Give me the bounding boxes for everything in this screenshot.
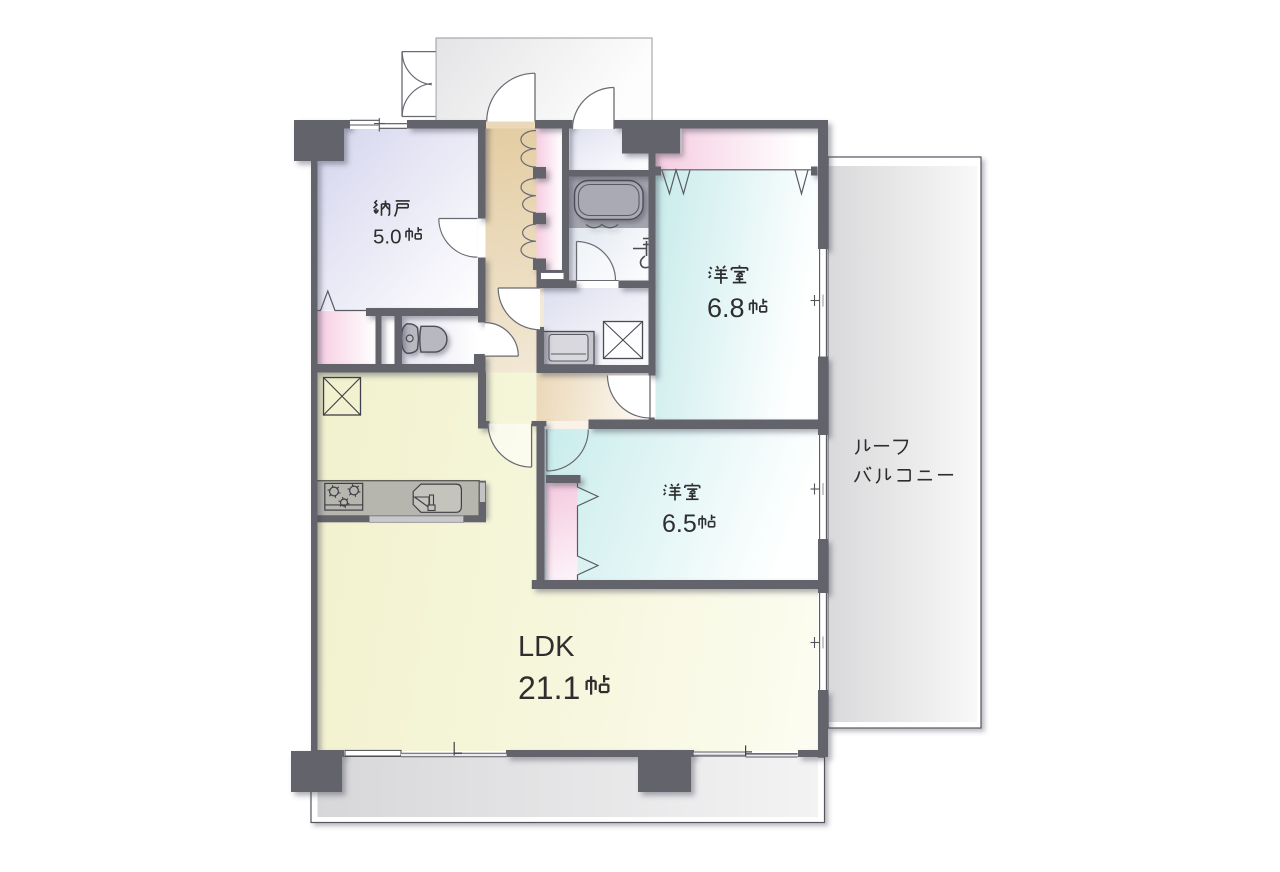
svg-text:5.0: 5.0 (373, 226, 402, 249)
svg-text:6.5: 6.5 (662, 510, 697, 538)
svg-text:6.8: 6.8 (707, 293, 745, 323)
svg-text:21.1: 21.1 (518, 670, 580, 706)
svg-text:LDK: LDK (518, 631, 575, 663)
